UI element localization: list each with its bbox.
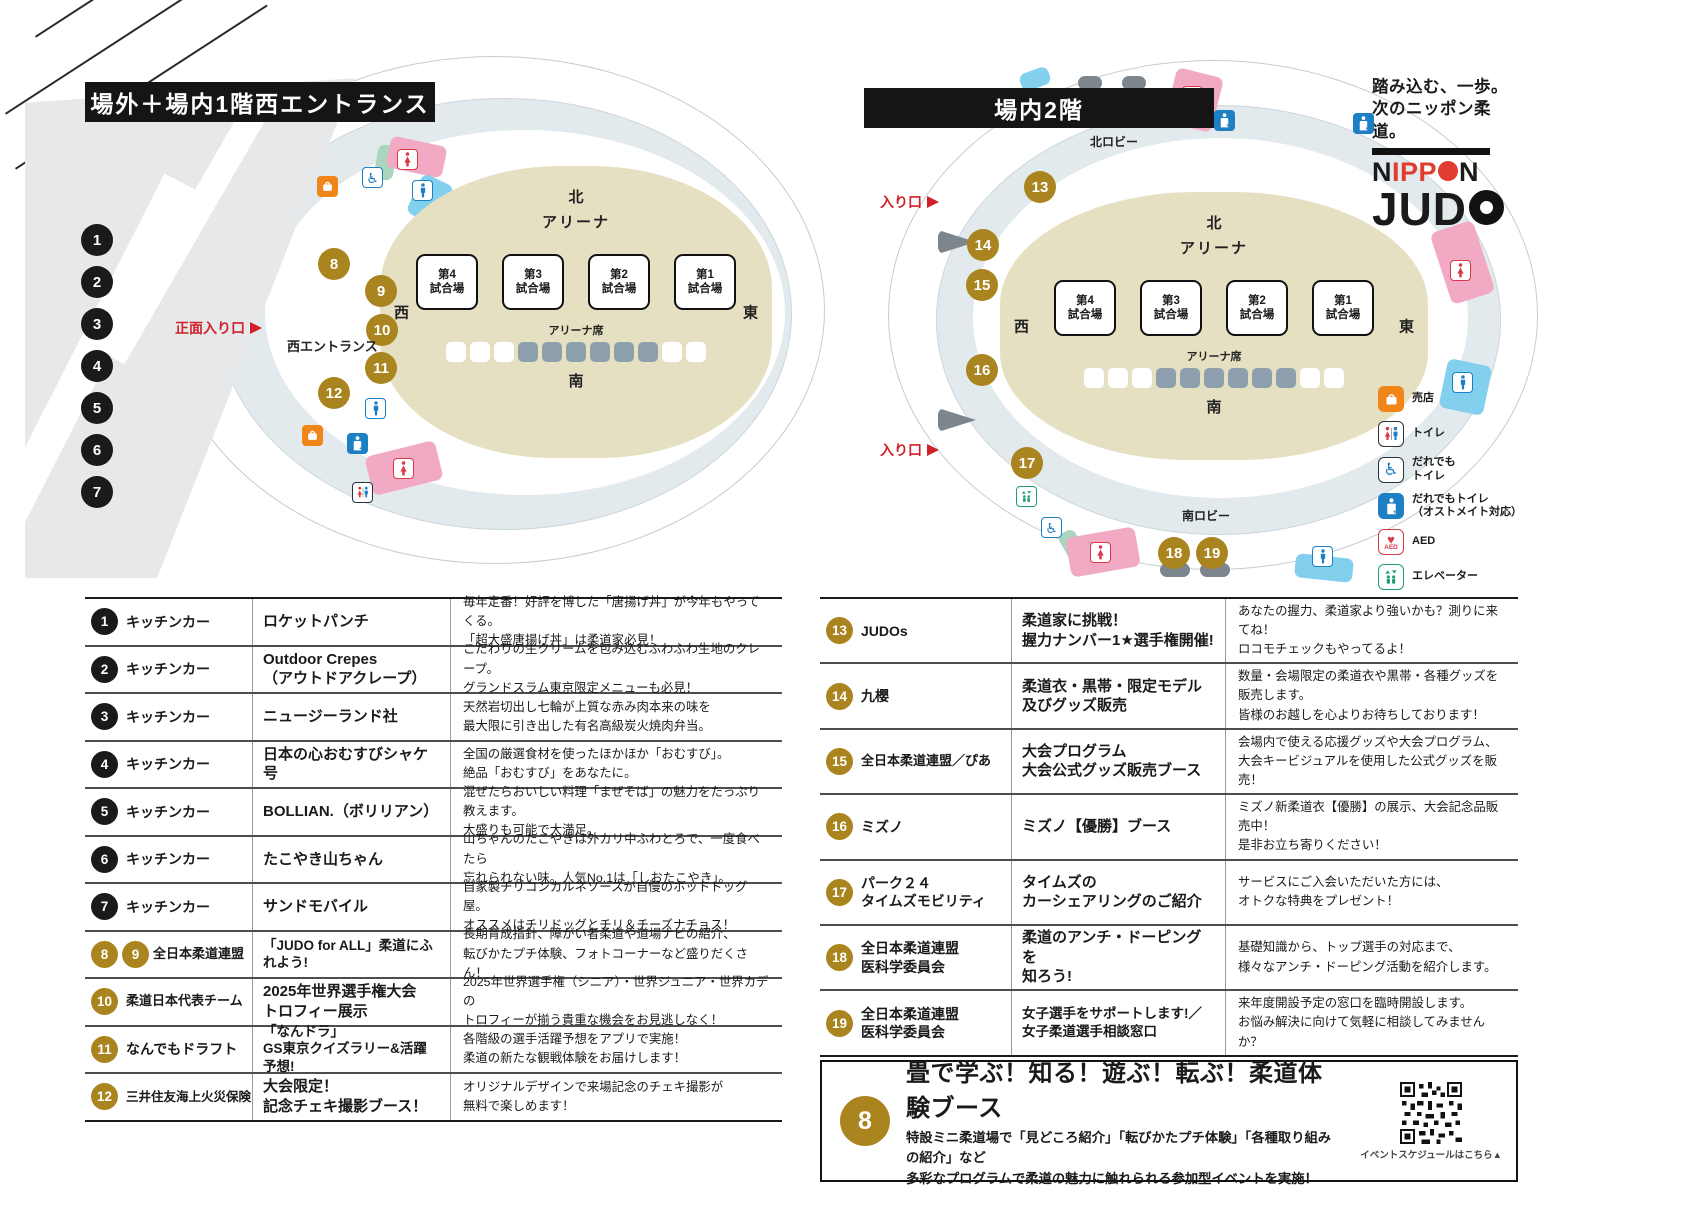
court-1: 第1 試合場	[1312, 280, 1374, 336]
map-marker-3: 3	[81, 308, 113, 340]
seat	[1180, 368, 1200, 388]
map-marker-2: 2	[81, 266, 113, 298]
svg-text:+: +	[359, 446, 362, 451]
wheelchair-icon: ♿	[362, 167, 383, 188]
qr-code	[1400, 1082, 1462, 1144]
seat	[638, 342, 658, 362]
venue-guide-page: 場外＋場内1階西エントランス 北 アリーナ 第4 試合場 第3 試合場 第2 試…	[0, 0, 1686, 1221]
entrance-arrow-icon	[927, 444, 939, 456]
nippon-judo-logo: 踏み込む、一歩。 次のニッポン柔道。 NIPPN JUD	[1372, 76, 1522, 232]
shop-icon	[302, 425, 323, 446]
svg-text:+: +	[1392, 509, 1396, 515]
womens-toilet-icon	[393, 458, 414, 479]
seat	[1108, 368, 1128, 388]
legend-item: ♥AED AED	[1378, 529, 1522, 555]
map-marker-14: 14	[967, 229, 999, 261]
table-row: 89全日本柔道連盟「JUDO for ALL」柔道にふれよう!長期育成指針、障が…	[85, 932, 782, 980]
experience-title: 畳で学ぶ！知る！遊ぶ！転ぶ！柔道体験ブース	[906, 1053, 1344, 1123]
row-number: 7	[91, 893, 118, 920]
table-row: 17パーク２４ タイムズモビリティタイムズの カーシェアリングのご紹介サービスに…	[820, 861, 1518, 926]
seat	[518, 342, 538, 362]
table-row: 7キッチンカーサンドモバイル自家製チリコンカルネソースが自慢のホットドッグ屋。 …	[85, 884, 782, 932]
row-number: 9	[122, 941, 149, 968]
map-marker-17: 17	[1011, 447, 1043, 479]
seat	[1276, 368, 1296, 388]
court-4: 第4 試合場	[1054, 280, 1116, 336]
mens-toilet-icon	[365, 398, 386, 419]
map-marker-11: 11	[365, 352, 397, 384]
ostomate-toilet-icon: +	[1378, 493, 1404, 519]
map-marker-6: 6	[81, 434, 113, 466]
court-4: 第4 試合場	[416, 254, 478, 310]
logo-judo: JUD	[1372, 186, 1522, 232]
row-number: 16	[826, 813, 853, 840]
entrance-arrow-icon	[927, 196, 939, 208]
entrance-arrow-icon	[250, 322, 262, 334]
right-map-title: 場内2階	[994, 91, 1084, 125]
womens-toilet-icon	[1450, 260, 1471, 281]
seat	[686, 342, 706, 362]
logo-tagline-1: 踏み込む、一歩。	[1372, 76, 1522, 98]
row-number: 13	[826, 617, 853, 644]
entrance-label-bottom: 入り口	[880, 440, 939, 460]
entrance-label-top: 入り口	[880, 192, 939, 212]
judo-experience-box: 8 畳で学ぶ！知る！遊ぶ！転ぶ！柔道体験ブース 特設ミニ柔道場で「見どころ紹介」…	[820, 1060, 1518, 1182]
row-number: 8	[91, 941, 118, 968]
seat	[446, 342, 466, 362]
logo-red-dot	[1438, 161, 1458, 181]
seat	[1252, 368, 1272, 388]
seat	[1156, 368, 1176, 388]
table-row: 6キッチンカーたこやき山ちゃん山ちゃんのたこやきは外カリ中ふわとろで、一度食べた…	[85, 837, 782, 885]
booth-table-2f: 13JUDOs柔道家に挑戦！ 握力ナンバー1★選手権開催!あなたの握力、柔道家よ…	[820, 597, 1518, 1057]
arena-seats-label: アリーナ席	[1187, 348, 1242, 364]
courts-row: 第4 試合場 第3 試合場 第2 試合場 第1 試合場	[1054, 280, 1374, 336]
womens-toilet-icon	[397, 149, 418, 170]
table-row: 12三井住友海上火災保険大会限定！ 記念チェキ撮影ブース！オリジナルデザインで来…	[85, 1074, 782, 1122]
arena-label: アリーナ	[1180, 237, 1248, 258]
seat	[1324, 368, 1344, 388]
map-marker-19: 19	[1196, 537, 1228, 569]
compass-west: 西	[394, 302, 409, 323]
womens-toilet-icon	[1090, 542, 1111, 563]
row-number: 15	[826, 748, 853, 775]
table-row: 3キッチンカーニュージーランド社天然岩切出し七輪が上質な赤み肉本来の味を 最大限…	[85, 694, 782, 742]
row-number: 19	[826, 1010, 853, 1037]
table-row: 13JUDOs柔道家に挑戦！ 握力ナンバー1★選手権開催!あなたの握力、柔道家よ…	[820, 599, 1518, 664]
row-number: 3	[91, 703, 118, 730]
table-row: 15全日本柔道連盟／ぴあ大会プログラム 大会公式グッズ販売ブース会場内で使える応…	[820, 730, 1518, 795]
aed-icon: ♥AED	[1378, 529, 1404, 555]
front-entrance-label: 正面入り口	[175, 318, 262, 338]
logo-ring-o	[1469, 190, 1504, 225]
row-number: 12	[91, 1083, 118, 1110]
legend-item: トイレ	[1378, 421, 1522, 447]
compass-north: 北	[568, 186, 583, 207]
mens-toilet-icon	[1312, 546, 1333, 567]
map-marker-8: 8	[318, 248, 350, 280]
arena-seats-label: アリーナ席	[549, 322, 604, 338]
map-west-entrance: 場外＋場内1階西エントランス 北 アリーナ 第4 試合場 第3 試合場 第2 試…	[25, 18, 825, 578]
table-row: 19全日本柔道連盟 医科学委員会女子選手をサポートします!／ 女子柔道選手相談窓…	[820, 991, 1518, 1056]
court-2: 第2 試合場	[588, 254, 650, 310]
compass-north: 北	[1206, 212, 1221, 233]
map-marker-16: 16	[966, 354, 998, 386]
svg-text:+: +	[1226, 123, 1229, 128]
shop-icon	[317, 176, 338, 197]
row-number: 6	[91, 846, 118, 873]
court-1: 第1 試合場	[674, 254, 736, 310]
seat	[542, 342, 562, 362]
seat	[1084, 368, 1104, 388]
map-marker-18: 18	[1158, 537, 1190, 569]
table-row: 14九櫻柔道衣・黒帯・限定モデル 及びグッズ販売数量・会場限定の柔道衣や黒帯・各…	[820, 664, 1518, 729]
seat	[614, 342, 634, 362]
row-number: 2	[91, 656, 118, 683]
compass-east: 東	[1399, 316, 1414, 337]
elevator-icon	[1016, 486, 1037, 507]
toilet-icon	[352, 482, 373, 503]
table-row: 16ミズノミズノ【優勝】ブースミズノ新柔道衣【優勝】の展示、大会記念品販売中！ …	[820, 795, 1518, 860]
courts-row: 第4 試合場 第3 試合場 第2 試合場 第1 試合場	[416, 254, 736, 310]
shop-icon	[1378, 386, 1404, 412]
experience-text: 畳で学ぶ！知る！遊ぶ！転ぶ！柔道体験ブース 特設ミニ柔道場で「見どころ紹介」「転…	[906, 1053, 1344, 1190]
street-line	[35, 0, 254, 37]
left-map-title-banner: 場外＋場内1階西エントランス	[85, 82, 435, 122]
row-number: 17	[826, 879, 853, 906]
compass-east: 東	[743, 302, 758, 323]
table-row: 2キッチンカーOutdoor Crepes （アウトドアクレープ）こだわりの生ク…	[85, 647, 782, 695]
table-row: 11なんでもドラフト「なんドラ」 GS東京クイズラリー&活躍予想!各階級の選手活…	[85, 1027, 782, 1075]
booth-table-west: 1キッチンカーロケットパンチ毎年定番！好評を博した「唐揚げ丼」が今年もやってくる…	[85, 597, 782, 1122]
seat	[1132, 368, 1152, 388]
experience-qr-block: イベントスケジュールはこちら▲	[1360, 1082, 1502, 1161]
table-row: 5キッチンカーBOLLIAN.（ボリリアン）混ぜたらおいしい料理「まぜそば」の魅…	[85, 789, 782, 837]
wheelchair-icon: ♿	[1041, 517, 1062, 538]
accessible-toilet-icon: ♿	[1378, 457, 1404, 483]
map-legend: 売店 トイレ ♿ だれでも トイレ + だれでもトイレ （オストメイト対応） ♥…	[1378, 386, 1522, 590]
legend-item: + だれでもトイレ （オストメイト対応）	[1378, 493, 1522, 521]
south-lobby-label: 南ロビー	[1182, 507, 1230, 524]
legend-item: 売店	[1378, 386, 1522, 412]
map-marker-13: 13	[1024, 171, 1056, 203]
row-number: 1	[91, 608, 118, 635]
seat	[1204, 368, 1224, 388]
qr-caption: イベントスケジュールはこちら▲	[1360, 1147, 1502, 1161]
table-row: 4キッチンカー日本の心おむすびシャケ号全国の厳選食材を使ったほかほか「おむすび」…	[85, 742, 782, 790]
table-row: 1キッチンカーロケットパンチ毎年定番！好評を博した「唐揚げ丼」が今年もやってくる…	[85, 599, 782, 647]
logo-tagline-2: 次のニッポン柔道。	[1372, 98, 1522, 143]
left-map-title: 場外＋場内1階西エントランス	[90, 85, 429, 119]
court-2: 第2 試合場	[1226, 280, 1288, 336]
row-number: 18	[826, 944, 853, 971]
row-number: 11	[91, 1036, 118, 1063]
compass-west: 西	[1014, 316, 1029, 337]
seat	[566, 342, 586, 362]
arena-floor: 北 アリーナ 第4 試合場 第3 試合場 第2 試合場 第1 試合場 アリーナ席…	[380, 166, 772, 458]
toilet-icon	[1378, 421, 1404, 447]
mens-toilet-icon	[412, 180, 433, 201]
row-number: 14	[826, 683, 853, 710]
row-number: 4	[91, 751, 118, 778]
ostomate-toilet-icon: +	[1214, 110, 1235, 131]
legend-item: ♿ だれでも トイレ	[1378, 456, 1522, 484]
seat-strip	[1084, 368, 1344, 388]
arena-label: アリーナ	[542, 211, 610, 232]
map-marker-12: 12	[318, 377, 350, 409]
court-3: 第3 試合場	[1140, 280, 1202, 336]
court-3: 第3 試合場	[502, 254, 564, 310]
seat	[470, 342, 490, 362]
seat	[590, 342, 610, 362]
table-row: 18全日本柔道連盟 医科学委員会柔道のアンチ・ドーピングを 知ろう!基礎知識から…	[820, 926, 1518, 991]
seat	[1228, 368, 1248, 388]
table-row: 10柔道日本代表チーム2025年世界選手権大会 トロフィー展示2025年世界選手…	[85, 979, 782, 1027]
row-number: 5	[91, 798, 118, 825]
map-marker-4: 4	[81, 350, 113, 382]
north-lobby-label: 北ロビー	[1090, 133, 1138, 150]
logo-bar	[1372, 148, 1490, 155]
west-entrance-label: 西エントランス	[287, 336, 378, 355]
experience-number: 8	[840, 1096, 890, 1146]
seat	[1300, 368, 1320, 388]
map-marker-5: 5	[81, 392, 113, 424]
compass-south: 南	[1206, 396, 1221, 417]
seat	[494, 342, 514, 362]
arena-floor: 北 アリーナ 第4 試合場 第3 試合場 第2 試合場 第1 試合場 アリーナ席…	[1000, 192, 1428, 460]
elevator-icon	[1378, 564, 1404, 590]
svg-text:+: +	[1365, 126, 1368, 131]
row-number: 10	[91, 988, 118, 1015]
seat	[662, 342, 682, 362]
map-marker-7: 7	[81, 476, 113, 508]
compass-south: 南	[568, 370, 583, 391]
ostomate-toilet-icon: +	[347, 433, 368, 454]
map-marker-1: 1	[81, 224, 113, 256]
seat-strip	[446, 342, 706, 362]
legend-item: エレベーター	[1378, 564, 1522, 590]
right-map-title-banner: 場内2階	[864, 88, 1214, 128]
logo-nippon: NIPPN	[1372, 158, 1522, 186]
map-marker-9: 9	[365, 275, 397, 307]
ostomate-toilet-icon: +	[1353, 113, 1374, 134]
experience-desc: 特設ミニ柔道場で「見どころ紹介」「転びかたプチ体験」「各種取り組みの紹介」など …	[906, 1128, 1344, 1190]
map-marker-15: 15	[966, 269, 998, 301]
